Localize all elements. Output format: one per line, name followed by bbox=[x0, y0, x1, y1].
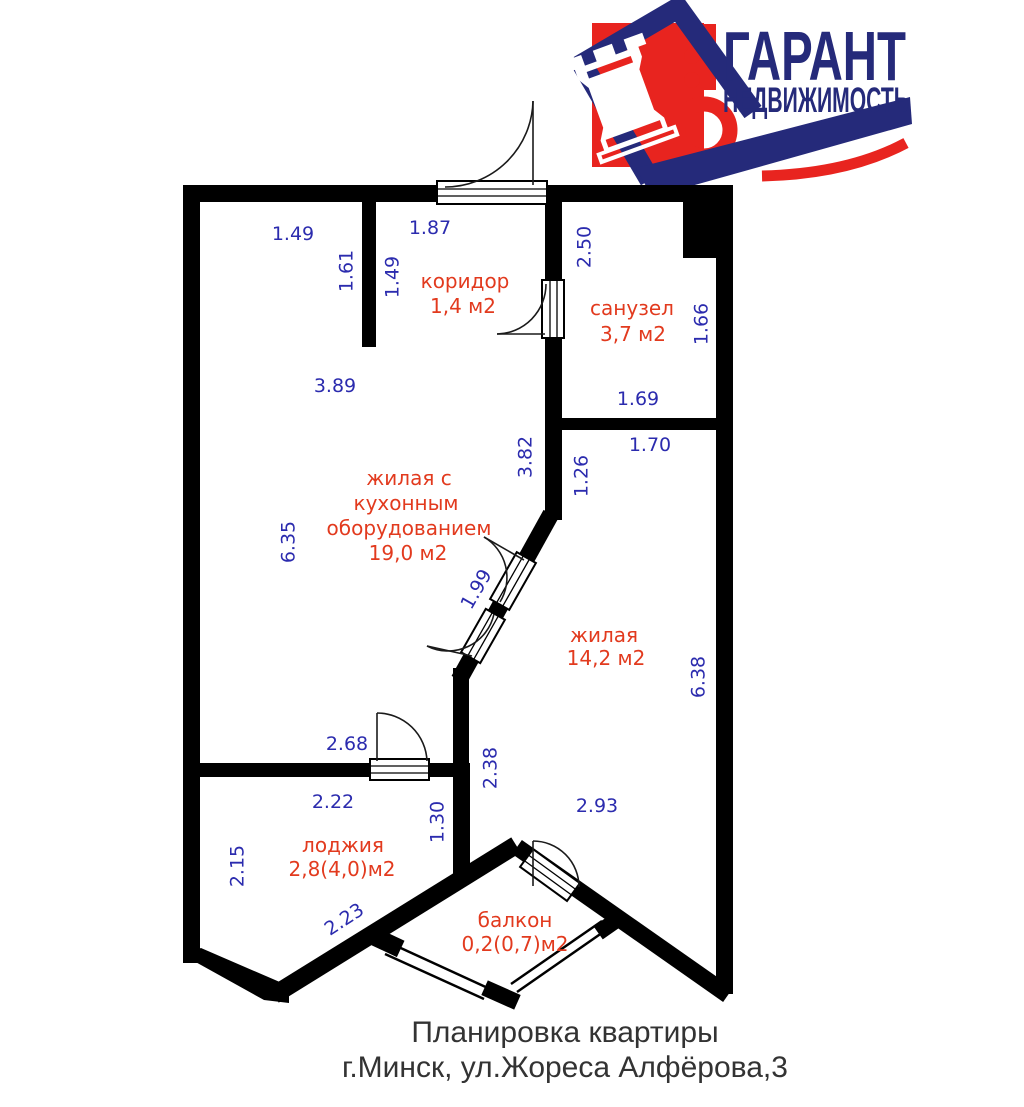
svg-text:1,4 м2: 1,4 м2 bbox=[430, 294, 496, 318]
caption-title: Планировка квартиры bbox=[411, 1016, 718, 1049]
svg-text:жилая с: жилая с bbox=[366, 466, 451, 490]
dim-1-70: 1.70 bbox=[629, 434, 671, 456]
room-label-koridor: коридор 1,4 м2 bbox=[421, 269, 510, 318]
dim-1-66: 1.66 bbox=[691, 303, 713, 345]
entrance-threshold bbox=[437, 181, 547, 204]
lodzhiya-door-arc bbox=[377, 713, 427, 761]
dim-1-30: 1.30 bbox=[427, 801, 449, 843]
svg-text:14,2 м2: 14,2 м2 bbox=[567, 646, 646, 670]
dim-3-89: 3.89 bbox=[314, 375, 356, 397]
svg-text:коридор: коридор bbox=[421, 269, 510, 293]
floor-plan-page: ♜ ГАРАНТ НЕДВИЖИМОСТЬ bbox=[0, 0, 1024, 1107]
dim-2-50: 2.50 bbox=[574, 226, 596, 268]
room-label-zhilaya: жилая 14,2 м2 bbox=[567, 623, 646, 670]
caption: Планировка квартиры г.Минск, ул.Жореса А… bbox=[342, 1016, 788, 1084]
svg-text:кухонным: кухонным bbox=[353, 491, 458, 515]
dim-1-49-top: 1.49 bbox=[272, 223, 314, 245]
room-labels: коридор 1,4 м2 санузел 3,7 м2 жилая с ку… bbox=[288, 269, 673, 956]
dim-3-82: 3.82 bbox=[515, 436, 537, 478]
svg-text:балкон: балкон bbox=[478, 908, 553, 932]
dim-6-35: 6.35 bbox=[278, 521, 300, 563]
caption-address: г.Минск, ул.Жореса Алфёрова,3 bbox=[342, 1051, 788, 1084]
logo: ♜ ГАРАНТ НЕДВИЖИМОСТЬ bbox=[530, 0, 912, 207]
room-label-sanuzel: санузел 3,7 м2 bbox=[590, 296, 674, 346]
dim-2-68: 2.68 bbox=[326, 733, 368, 755]
dim-1-87: 1.87 bbox=[409, 217, 451, 239]
dim-2-38: 2.38 bbox=[480, 747, 502, 789]
svg-text:19,0 м2: 19,0 м2 bbox=[369, 541, 448, 565]
room-label-zhilaya-kuhnya: жилая с кухонным оборудованием 19,0 м2 bbox=[327, 466, 492, 565]
logo-subtitle: НЕДВИЖИМОСТЬ bbox=[723, 81, 909, 120]
room-label-lodzhiya: лоджия 2,8(4,0)м2 bbox=[288, 833, 395, 881]
room-label-balkon: балкон 0,2(0,7)м2 bbox=[461, 908, 568, 956]
dim-1-26: 1.26 bbox=[571, 455, 593, 497]
svg-text:0,2(0,7)м2: 0,2(0,7)м2 bbox=[461, 932, 568, 956]
dim-2-22: 2.22 bbox=[312, 791, 354, 813]
dim-2-93: 2.93 bbox=[576, 795, 618, 817]
entrance-door-arc bbox=[445, 101, 533, 187]
diagonal-door-threshold-upper bbox=[490, 552, 536, 610]
svg-text:лоджия: лоджия bbox=[302, 833, 384, 857]
lodzhiya-threshold bbox=[370, 759, 429, 780]
svg-text:оборудованием: оборудованием bbox=[327, 516, 492, 540]
dim-1-61: 1.61 bbox=[336, 250, 358, 292]
svg-text:санузел: санузел bbox=[590, 296, 674, 320]
dim-1-49-vert: 1.49 bbox=[382, 256, 404, 298]
dim-6-38: 6.38 bbox=[688, 656, 710, 698]
svg-text:2,8(4,0)м2: 2,8(4,0)м2 bbox=[288, 857, 395, 881]
svg-text:жилая: жилая bbox=[570, 623, 638, 647]
dim-1-69: 1.69 bbox=[617, 388, 659, 410]
svg-text:3,7 м2: 3,7 м2 bbox=[600, 322, 666, 346]
dim-2-15: 2.15 bbox=[227, 845, 249, 887]
